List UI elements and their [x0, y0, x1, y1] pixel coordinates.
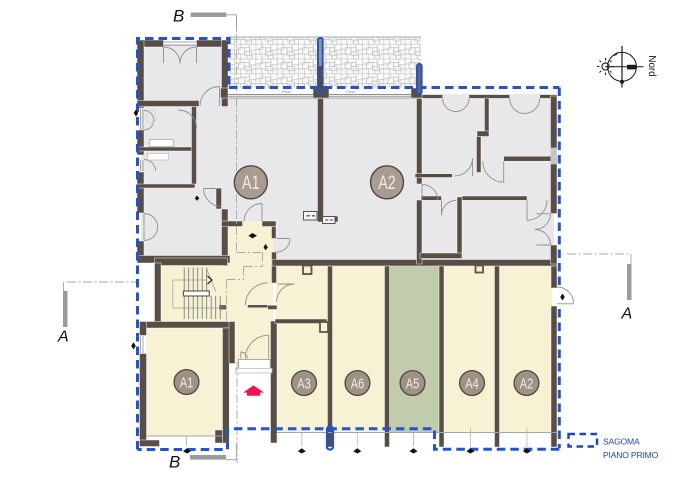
- svg-text:A: A: [621, 306, 633, 323]
- svg-text:B: B: [173, 7, 184, 26]
- svg-text:A1: A1: [180, 375, 194, 391]
- svg-text:A2: A2: [378, 172, 396, 194]
- svg-text:A1: A1: [242, 172, 260, 194]
- svg-text:B: B: [169, 453, 180, 472]
- svg-text:A6: A6: [351, 376, 365, 392]
- svg-text:A: A: [57, 329, 69, 346]
- svg-text:A4: A4: [465, 376, 479, 392]
- svg-text:SAGOMA: SAGOMA: [603, 437, 640, 447]
- svg-text:A5: A5: [406, 376, 420, 392]
- svg-text:Fisso: Fisso: [346, 89, 356, 94]
- svg-text:A3: A3: [297, 376, 311, 392]
- svg-text:Nord: Nord: [646, 55, 657, 76]
- svg-text:PIANO PRIMO: PIANO PRIMO: [603, 450, 659, 460]
- svg-text:A2: A2: [520, 376, 534, 392]
- svg-text:Fisso: Fisso: [282, 89, 292, 94]
